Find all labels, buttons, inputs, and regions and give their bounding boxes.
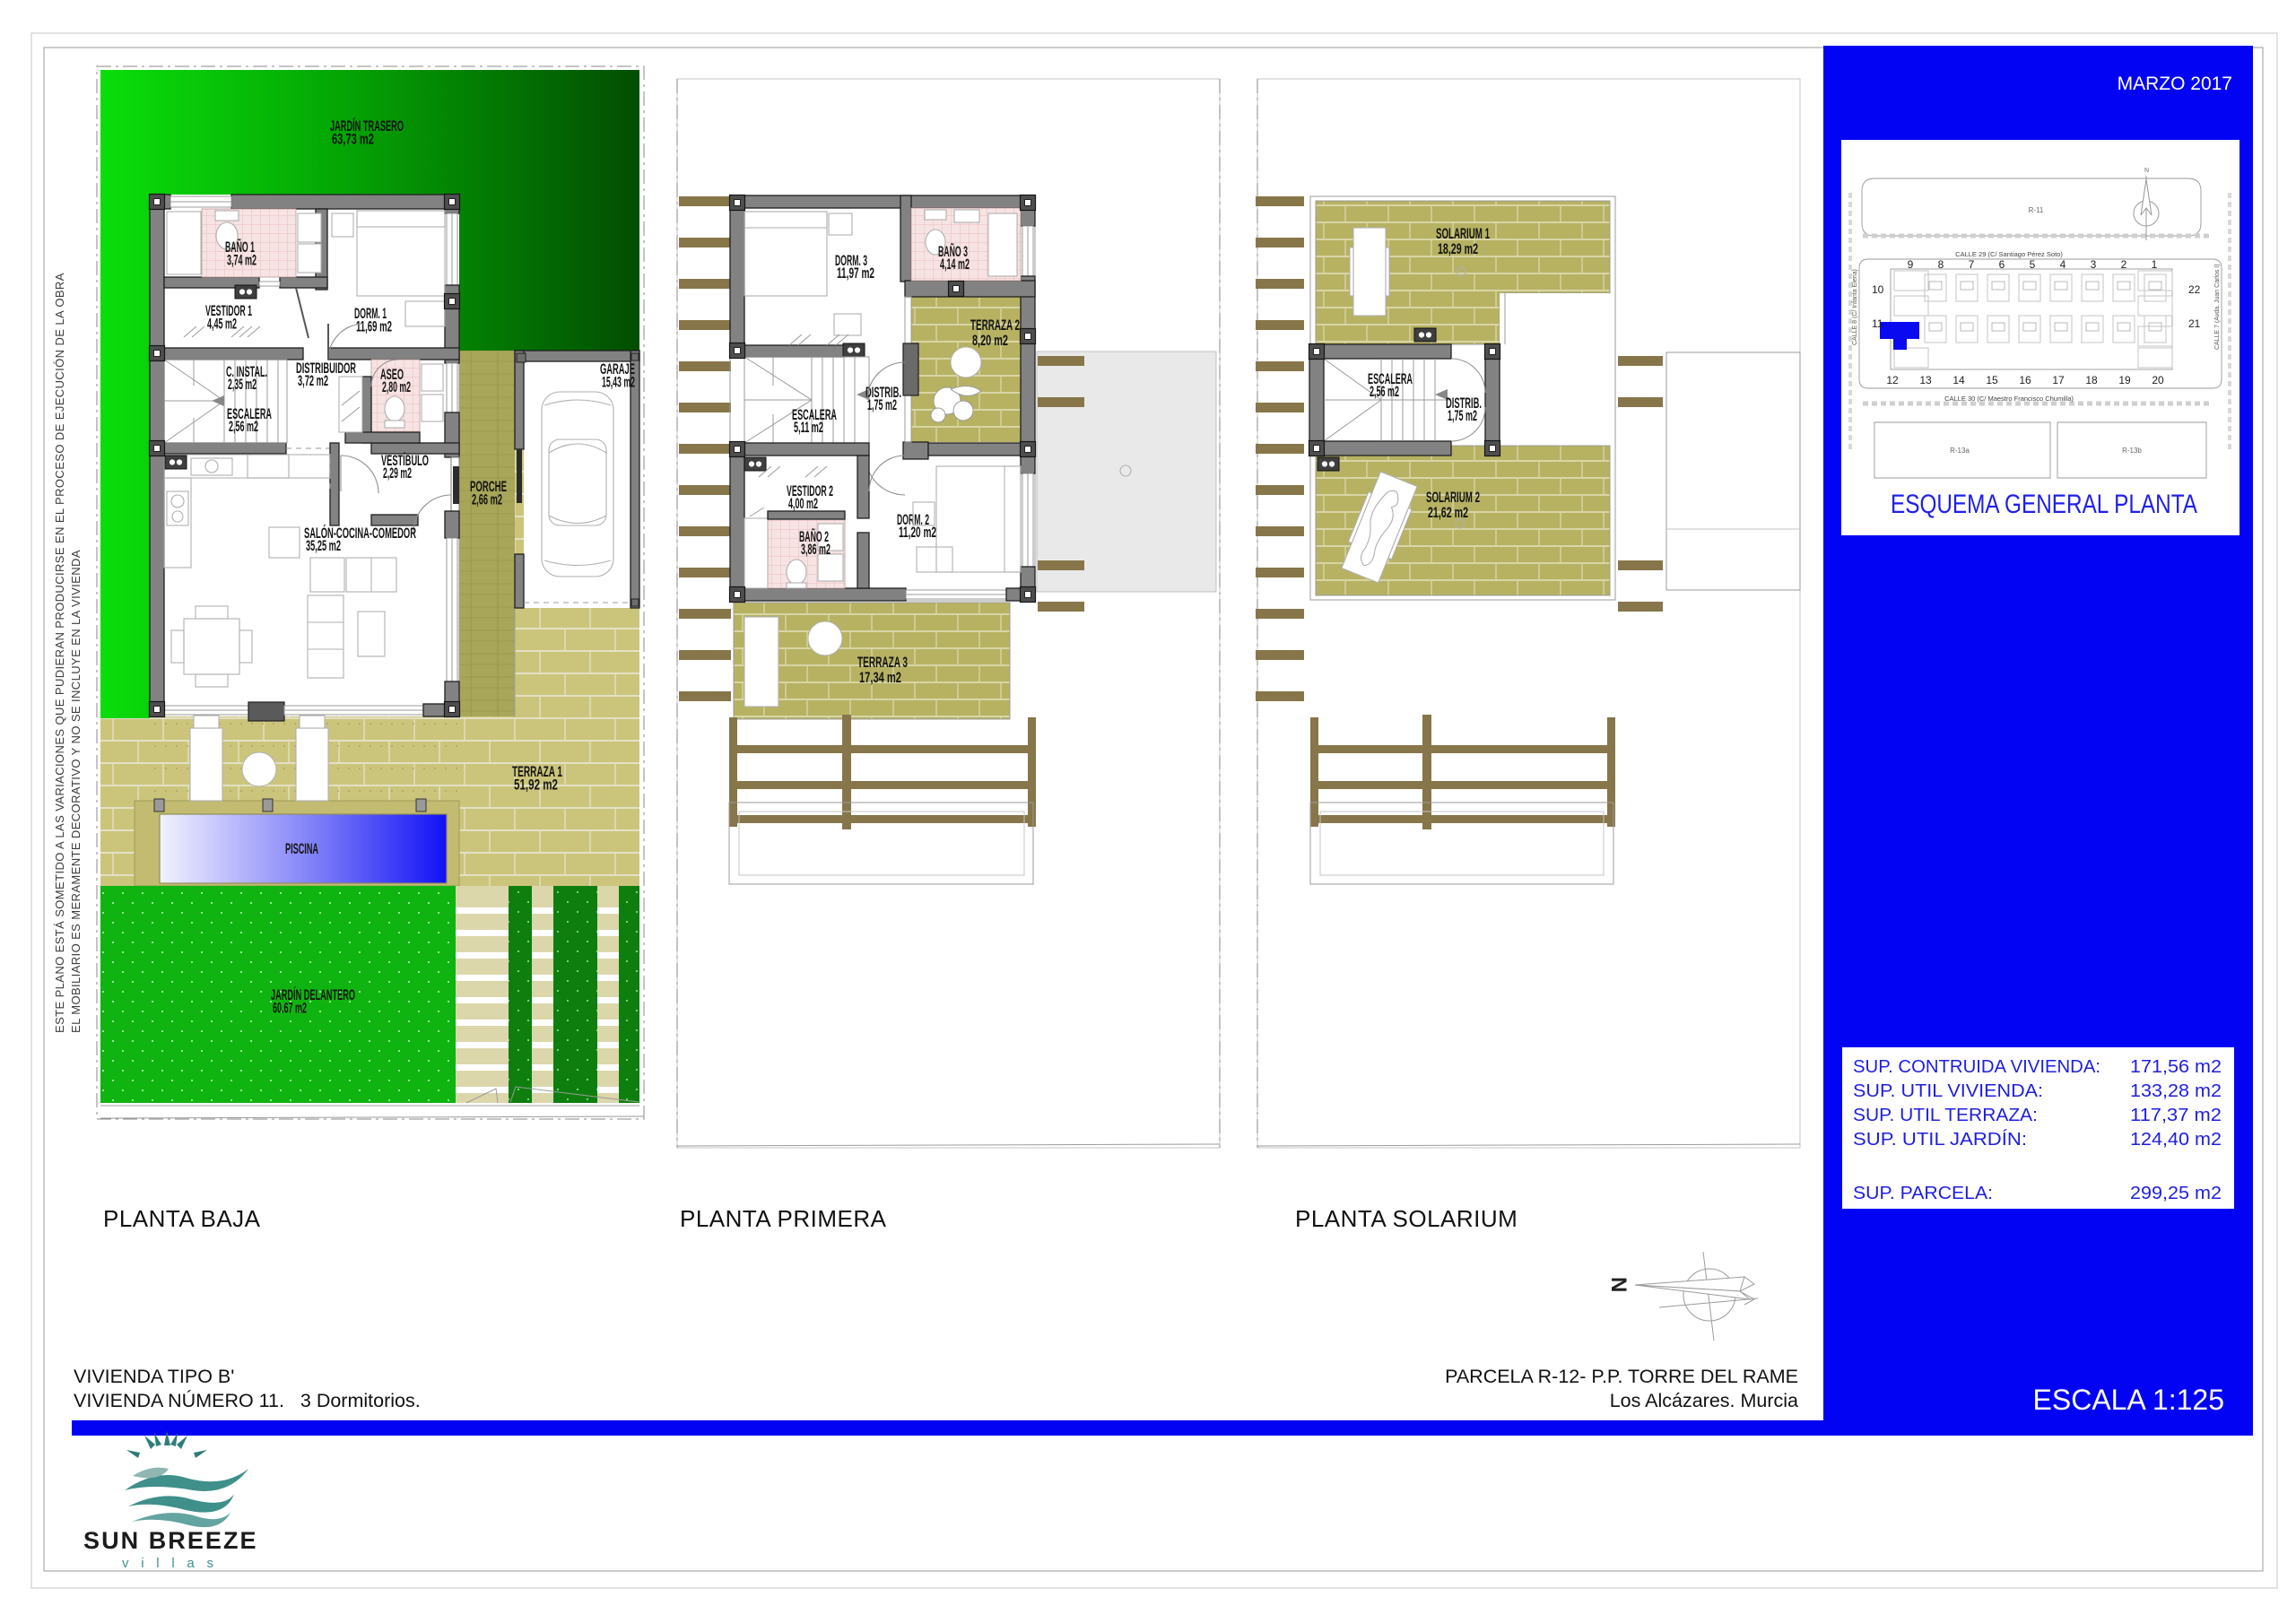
svg-text:299,25 m2: 299,25 m2 <box>2130 1183 2222 1203</box>
svg-text:4,14 m2: 4,14 m2 <box>940 256 970 273</box>
svg-text:CALLE 30 (C/ Maestro Francisco: CALLE 30 (C/ Maestro Francisco Chumilla) <box>1944 395 2074 403</box>
svg-text:18,29 m2: 18,29 m2 <box>1438 241 1478 257</box>
svg-text:9: 9 <box>1908 258 1914 271</box>
svg-text:18: 18 <box>2085 374 2098 386</box>
svg-text:MARZO 2017: MARZO 2017 <box>2118 74 2232 94</box>
svg-text:14: 14 <box>1952 374 1965 386</box>
svg-text:Los Alcázares. Murcia: Los Alcázares. Murcia <box>1610 1390 1798 1411</box>
svg-text:TERRAZA 3: TERRAZA 3 <box>857 655 908 671</box>
svg-text:N: N <box>1606 1277 1631 1292</box>
svg-text:21: 21 <box>2188 317 2201 330</box>
svg-text:20: 20 <box>2152 374 2164 386</box>
svg-text:16: 16 <box>2019 374 2031 386</box>
svg-text:5,11 m2: 5,11 m2 <box>794 420 823 436</box>
svg-text:2,66 m2: 2,66 m2 <box>472 492 502 508</box>
svg-text:SUP. PARCELA:: SUP. PARCELA: <box>1853 1183 1993 1203</box>
svg-text:2,56 m2: 2,56 m2 <box>229 419 258 435</box>
svg-text:N: N <box>2144 168 2149 174</box>
svg-text:11,69 m2: 11,69 m2 <box>356 319 392 335</box>
svg-text:3,72 m2: 3,72 m2 <box>298 373 328 389</box>
svg-text:2,29 m2: 2,29 m2 <box>383 465 412 482</box>
svg-text:171,56 m2: 171,56 m2 <box>2130 1056 2222 1077</box>
svg-text:ESQUEMA GENERAL PLANTA: ESQUEMA GENERAL PLANTA <box>1891 490 2197 519</box>
svg-text:3: 3 <box>2091 258 2097 271</box>
svg-text:PLANTA PRIMERA: PLANTA PRIMERA <box>680 1205 887 1232</box>
svg-text:19: 19 <box>2118 374 2131 386</box>
svg-text:TERRAZA 2: TERRAZA 2 <box>970 317 1020 334</box>
svg-text:8: 8 <box>1938 258 1944 271</box>
svg-text:13: 13 <box>1919 374 1932 386</box>
svg-text:1,75 m2: 1,75 m2 <box>1448 408 1477 424</box>
svg-text:4: 4 <box>2060 258 2066 271</box>
svg-text:PISCINA: PISCINA <box>285 841 318 857</box>
svg-text:EL MOBILIARIO ES MERAMENTE DEC: EL MOBILIARIO ES MERAMENTE DECORATIVO Y … <box>69 550 83 1033</box>
svg-text:2,80 m2: 2,80 m2 <box>382 379 411 395</box>
svg-text:15,43 m2: 15,43 m2 <box>602 375 635 391</box>
svg-text:PLANTA BAJA: PLANTA BAJA <box>103 1205 261 1232</box>
svg-text:1: 1 <box>2152 258 2158 271</box>
svg-text:SUP. UTIL JARDÍN:: SUP. UTIL JARDÍN: <box>1853 1129 2027 1150</box>
svg-text:11,97 m2: 11,97 m2 <box>837 265 874 282</box>
svg-text:CALLE 8 (C/ Infanta Elena): CALLE 8 (C/ Infanta Elena) <box>1852 269 1858 345</box>
svg-text:8,20 m2: 8,20 m2 <box>972 333 1008 349</box>
svg-text:villas: villas <box>122 1556 224 1571</box>
svg-text:SOLARIUM 1: SOLARIUM 1 <box>1436 226 1490 242</box>
svg-text:17: 17 <box>2052 374 2065 386</box>
svg-text:133,28 m2: 133,28 m2 <box>2130 1081 2222 1101</box>
svg-text:60.67 m2: 60.67 m2 <box>273 1001 307 1017</box>
svg-text:2,56 m2: 2,56 m2 <box>1370 384 1399 400</box>
svg-text:11,20 m2: 11,20 m2 <box>899 525 936 541</box>
svg-text:7: 7 <box>1969 258 1975 271</box>
svg-text:3,86 m2: 3,86 m2 <box>801 542 831 558</box>
svg-text:ESTE PLANO ESTÁ SOMETIDO A LAS: ESTE PLANO ESTÁ SOMETIDO A LAS VARIACION… <box>53 273 66 1033</box>
svg-text:VIVIENDA NÚMERO 11. 3 Dormit: VIVIENDA NÚMERO 11. 3 Dormitorios. <box>74 1389 421 1411</box>
svg-text:SUP. UTIL TERRAZA:: SUP. UTIL TERRAZA: <box>1853 1105 2038 1125</box>
svg-text:PARCELA R-12- P.P. TORRE DEL R: PARCELA R-12- P.P. TORRE DEL RAME <box>1445 1366 1798 1387</box>
svg-text:35,25 m2: 35,25 m2 <box>306 538 341 554</box>
svg-text:3,74 m2: 3,74 m2 <box>227 253 257 269</box>
svg-text:4,45 m2: 4,45 m2 <box>207 317 237 333</box>
svg-text:CALLE 29 (C/ Santiago Pérez So: CALLE 29 (C/ Santiago Pérez Soto) <box>1955 250 2063 258</box>
svg-text:21,62 m2: 21,62 m2 <box>1428 505 1468 521</box>
svg-text:15: 15 <box>1986 374 1998 386</box>
svg-text:117,37 m2: 117,37 m2 <box>2130 1105 2222 1125</box>
svg-text:R-13a: R-13a <box>1950 447 1970 455</box>
svg-text:SUP. UTIL VIVIENDA:: SUP. UTIL VIVIENDA: <box>1853 1081 2043 1101</box>
svg-text:2,35 m2: 2,35 m2 <box>228 377 257 393</box>
svg-text:1,75 m2: 1,75 m2 <box>867 397 897 413</box>
svg-text:SUN BREEZE: SUN BREEZE <box>83 1527 260 1554</box>
svg-text:22: 22 <box>2188 283 2201 296</box>
svg-text:12: 12 <box>1886 374 1899 386</box>
svg-text:4,00 m2: 4,00 m2 <box>788 496 818 512</box>
svg-text:PLANTA SOLARIUM: PLANTA SOLARIUM <box>1295 1205 1518 1232</box>
svg-text:CALLE 7 (Avda. Juan Carlos I): CALLE 7 (Avda. Juan Carlos I) <box>2214 264 2221 350</box>
svg-text:6: 6 <box>1999 258 2005 271</box>
svg-text:5: 5 <box>2030 258 2036 271</box>
svg-text:ESCALA 1:125: ESCALA 1:125 <box>2033 1384 2224 1416</box>
svg-text:R-11: R-11 <box>2029 206 2044 214</box>
svg-text:17,34 m2: 17,34 m2 <box>859 670 901 686</box>
svg-text:SUP. CONTRUIDA VIVIENDA:: SUP. CONTRUIDA VIVIENDA: <box>1853 1056 2100 1077</box>
svg-text:10: 10 <box>1872 283 1884 296</box>
svg-text:51,92 m2: 51,92 m2 <box>514 777 558 794</box>
svg-text:VIVIENDA TIPO B': VIVIENDA TIPO B' <box>74 1366 234 1387</box>
svg-text:11: 11 <box>1872 317 1883 330</box>
svg-text:124,40 m2: 124,40 m2 <box>2130 1129 2222 1150</box>
svg-text:2: 2 <box>2121 258 2127 271</box>
svg-text:R-13b: R-13b <box>2122 447 2142 455</box>
svg-text:SOLARIUM 2: SOLARIUM 2 <box>1426 490 1480 506</box>
svg-text:63,73 m2: 63,73 m2 <box>332 132 374 148</box>
